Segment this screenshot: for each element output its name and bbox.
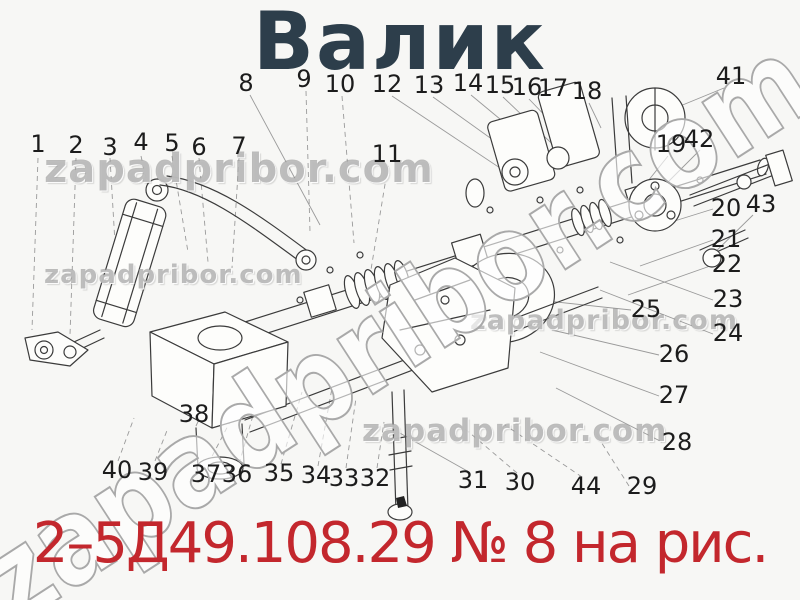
catalog-page: zapadpribor.comzapadpribor.comzapadpribo… — [0, 0, 800, 600]
damper-cylinder — [25, 179, 168, 366]
bellows-coupling-2 — [569, 198, 614, 237]
part-number-caption: 2–5Д49.108.29 № 8 на рис. — [0, 516, 800, 572]
page-title: Валик — [0, 2, 800, 82]
bottom-left-box — [150, 312, 288, 479]
right-fittings — [690, 150, 792, 267]
rocker-cluster — [466, 81, 632, 213]
technical-drawing — [0, 0, 800, 600]
vertical-link — [388, 390, 412, 520]
